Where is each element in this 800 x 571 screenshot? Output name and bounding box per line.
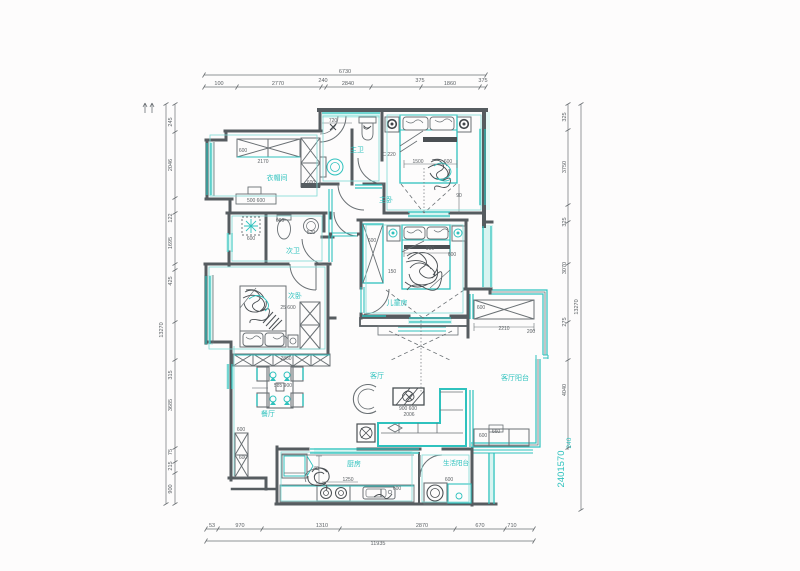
- svg-text:25 600: 25 600: [280, 305, 296, 311]
- svg-text:厨房: 厨房: [347, 459, 361, 468]
- svg-text:720: 720: [329, 118, 338, 124]
- svg-text:2210: 2210: [498, 326, 509, 332]
- svg-text:1250: 1250: [342, 477, 353, 483]
- svg-text:1860: 1860: [444, 81, 456, 87]
- svg-text:1310: 1310: [316, 523, 328, 529]
- svg-text:2860: 2860: [280, 356, 291, 362]
- svg-text:衣帽间: 衣帽间: [267, 173, 288, 182]
- svg-text:325: 325: [562, 217, 568, 226]
- svg-text:600: 600: [448, 252, 457, 258]
- svg-text:600: 600: [307, 180, 316, 186]
- svg-text:325: 325: [562, 112, 568, 121]
- svg-text:C 220: C 220: [382, 152, 396, 158]
- svg-text:3750: 3750: [562, 161, 568, 173]
- svg-text:次卧: 次卧: [288, 291, 302, 300]
- svg-text:150: 150: [388, 269, 397, 275]
- svg-text:240: 240: [318, 78, 327, 84]
- svg-text:425: 425: [168, 276, 174, 285]
- svg-text:4040: 4040: [562, 384, 568, 396]
- svg-text:670: 670: [475, 523, 484, 529]
- svg-text:餐厅: 餐厅: [261, 409, 275, 418]
- svg-text:900: 900: [168, 484, 174, 493]
- svg-text:主卧: 主卧: [379, 195, 393, 204]
- svg-text:600: 600: [239, 148, 248, 154]
- svg-text:600: 600: [368, 238, 377, 244]
- svg-text:3070: 3070: [562, 262, 568, 274]
- svg-text:11935: 11935: [371, 541, 386, 547]
- svg-text:13270: 13270: [159, 322, 165, 337]
- svg-text:儿童房: 儿童房: [387, 298, 408, 307]
- svg-text:次卫: 次卫: [286, 246, 300, 255]
- svg-text:245: 245: [168, 117, 174, 126]
- svg-text:6730: 6730: [339, 69, 351, 75]
- svg-text:240: 240: [566, 437, 573, 448]
- svg-text:生活阳台: 生活阳台: [443, 458, 469, 467]
- svg-text:375: 375: [415, 78, 424, 84]
- svg-text:90: 90: [456, 193, 462, 199]
- svg-text:600: 600: [479, 433, 488, 439]
- svg-text:客厅: 客厅: [370, 371, 384, 380]
- svg-text:100: 100: [214, 81, 223, 87]
- svg-text:主卫: 主卫: [350, 145, 364, 154]
- svg-text:122: 122: [168, 213, 174, 222]
- svg-text:710: 710: [507, 523, 516, 529]
- svg-text:500 600: 500 600: [247, 198, 265, 204]
- svg-text:客厅阳台: 客厅阳台: [501, 373, 529, 382]
- svg-text:2840: 2840: [342, 81, 354, 87]
- svg-text:600: 600: [239, 455, 248, 461]
- svg-text:53: 53: [209, 523, 215, 529]
- svg-text:315: 315: [168, 370, 174, 379]
- svg-text:900: 900: [426, 246, 435, 252]
- svg-text:520: 520: [307, 230, 316, 236]
- svg-text:2870: 2870: [416, 523, 428, 529]
- svg-text:660: 660: [492, 429, 501, 435]
- svg-text:585 900: 585 900: [274, 383, 292, 389]
- svg-text:600: 600: [276, 218, 285, 224]
- svg-text:600: 600: [247, 236, 256, 242]
- svg-text:2770: 2770: [272, 81, 284, 87]
- svg-text:2401570: 2401570: [556, 451, 567, 488]
- svg-text:1695: 1695: [168, 237, 174, 249]
- svg-text:600: 600: [444, 159, 453, 165]
- svg-text:215: 215: [168, 461, 174, 470]
- svg-text:200: 200: [527, 329, 536, 335]
- svg-text:2170: 2170: [257, 159, 268, 165]
- svg-text:13270: 13270: [574, 299, 580, 314]
- svg-text:275: 275: [562, 317, 568, 326]
- svg-text:970: 970: [235, 523, 244, 529]
- svg-text:1500: 1500: [412, 159, 423, 165]
- svg-text:600: 600: [237, 427, 246, 433]
- svg-text:375: 375: [478, 78, 487, 84]
- svg-text:600: 600: [393, 486, 402, 492]
- svg-text:600: 600: [445, 477, 454, 483]
- svg-text:3685: 3685: [168, 399, 174, 411]
- svg-text:40: 40: [313, 466, 319, 472]
- svg-text:2046: 2046: [168, 159, 174, 171]
- svg-text:2006: 2006: [403, 412, 414, 418]
- svg-text:75: 75: [168, 449, 174, 455]
- svg-text:600: 600: [477, 305, 486, 311]
